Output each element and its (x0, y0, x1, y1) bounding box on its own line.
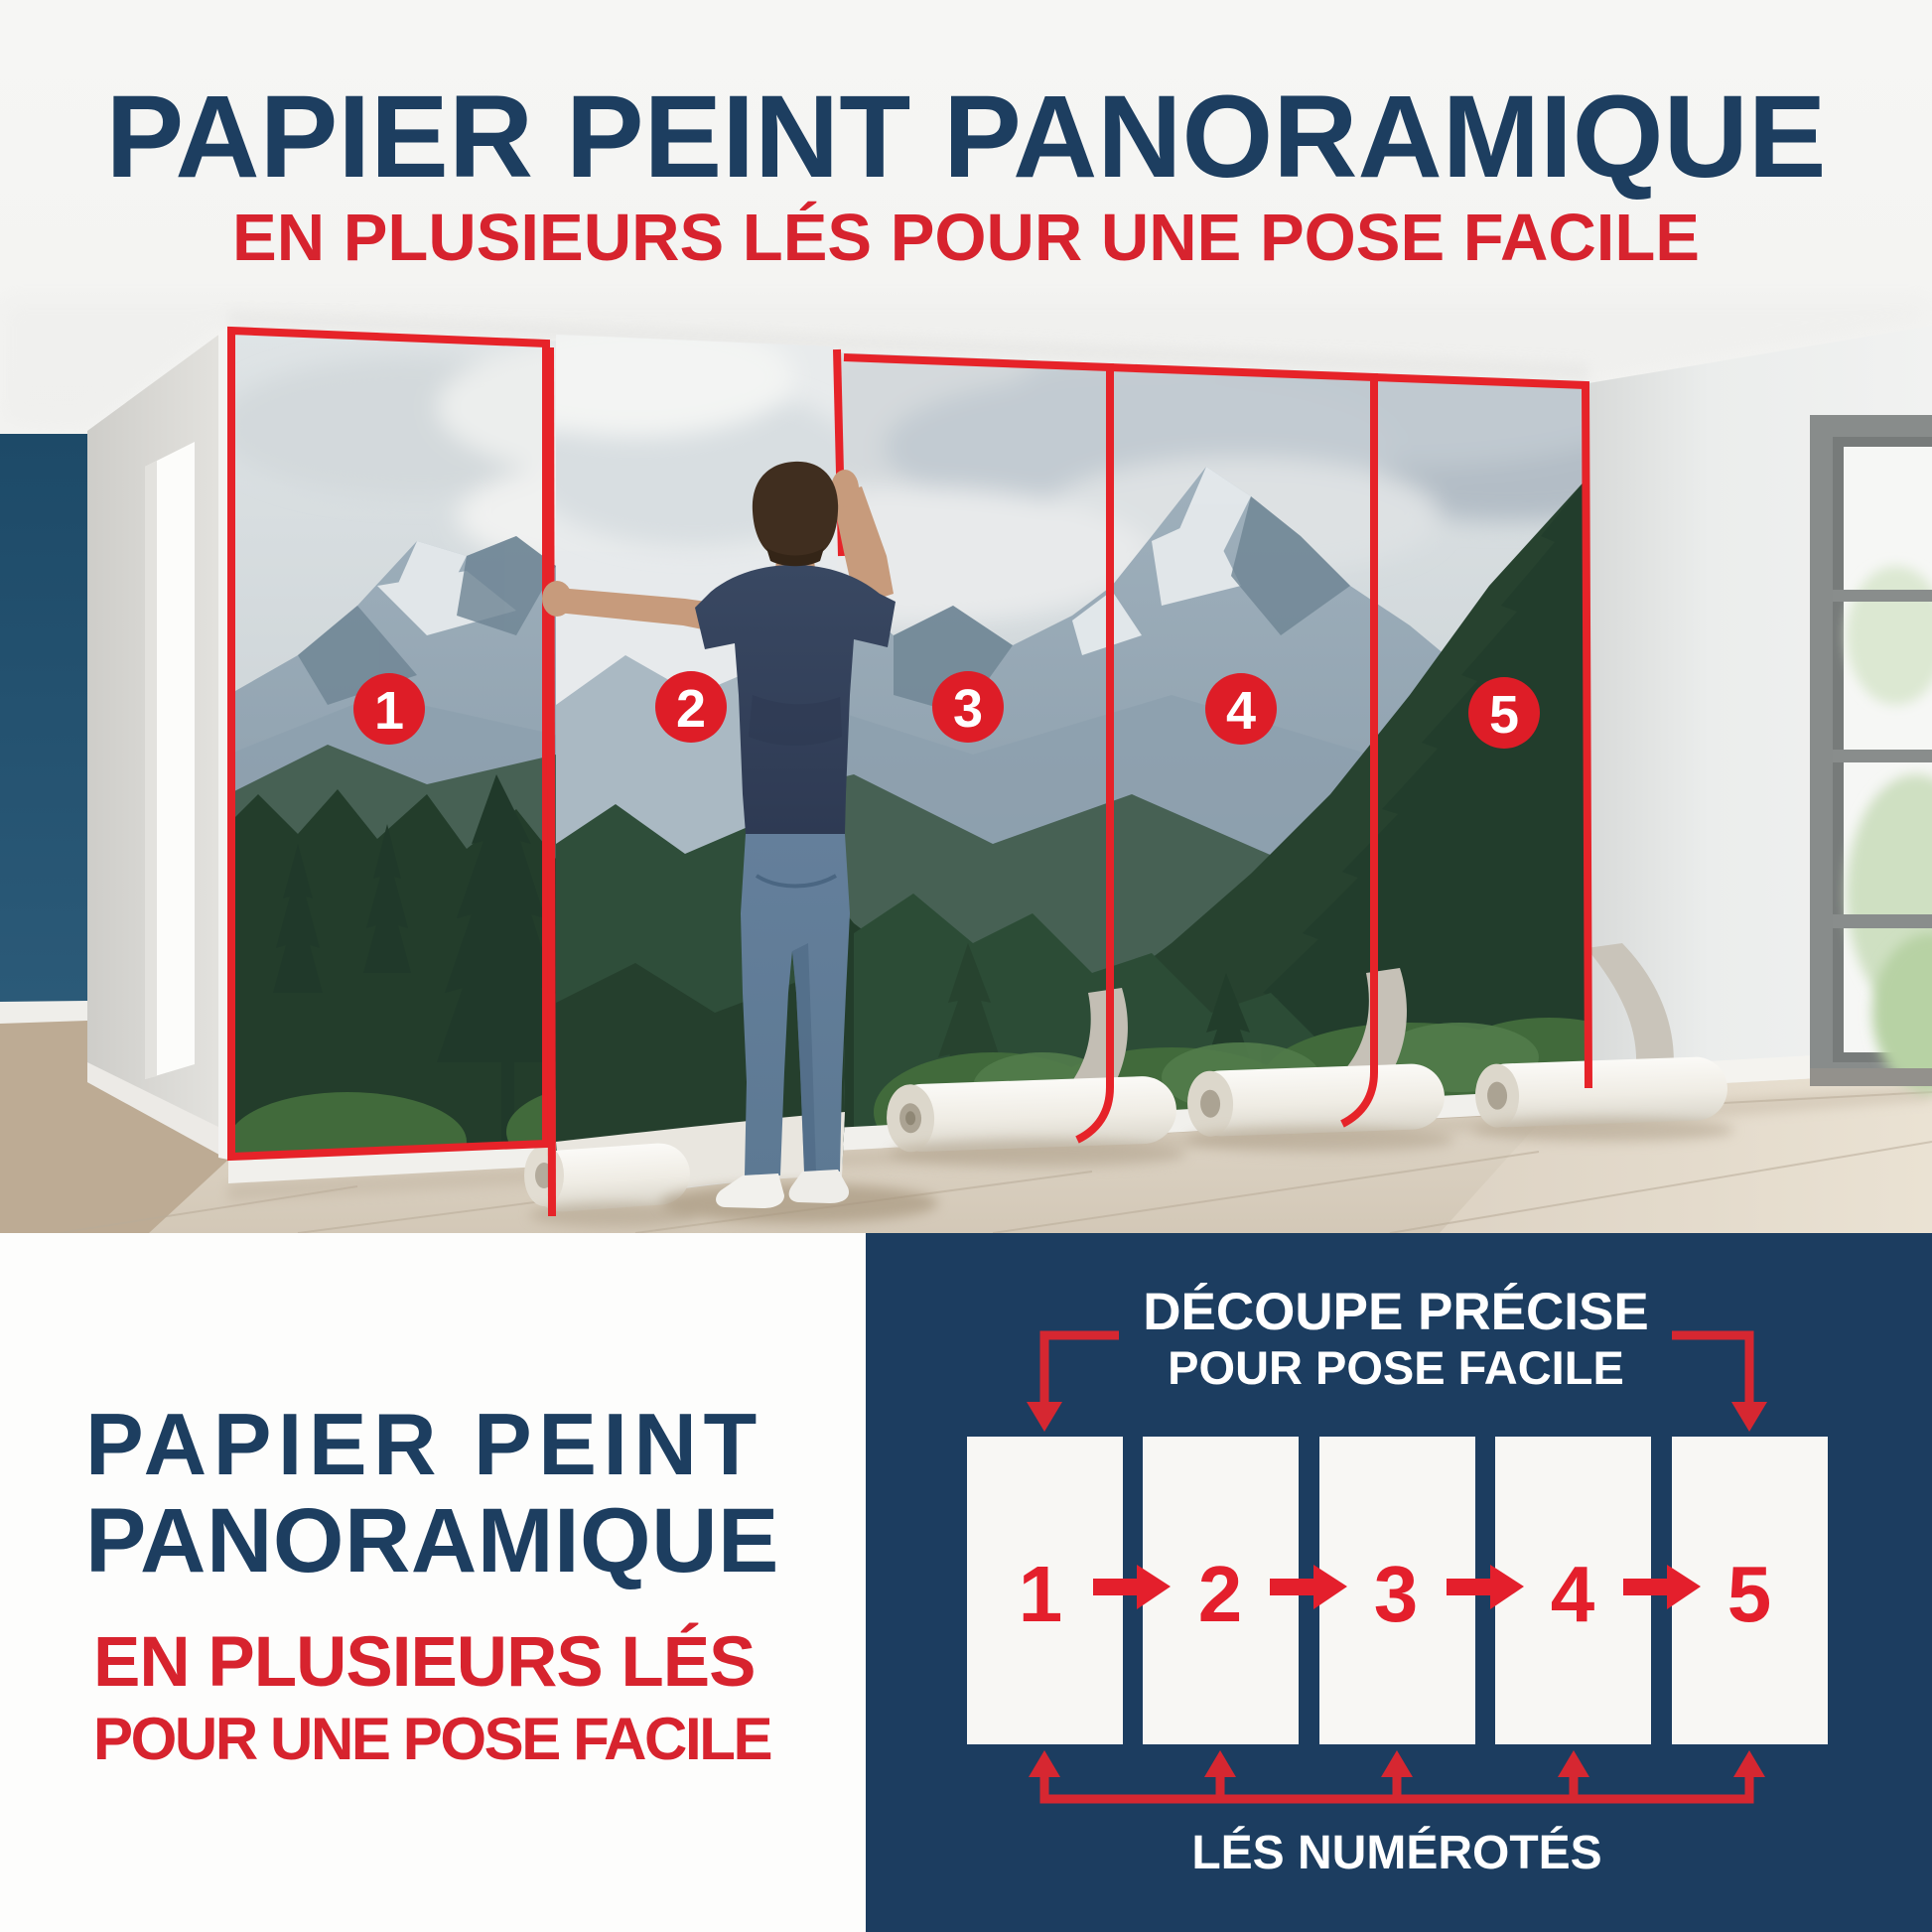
svg-text:4: 4 (1551, 1550, 1595, 1638)
svg-text:1: 1 (1019, 1550, 1063, 1638)
svg-text:POUR POSE FACILE: POUR POSE FACILE (1168, 1341, 1624, 1394)
svg-text:DÉCOUPE PRÉCISE: DÉCOUPE PRÉCISE (1143, 1282, 1649, 1341)
svg-text:1: 1 (374, 681, 404, 741)
svg-text:5: 5 (1727, 1550, 1772, 1638)
svg-text:2: 2 (676, 679, 706, 739)
svg-text:LÉS NUMÉROTÉS: LÉS NUMÉROTÉS (1191, 1826, 1601, 1879)
svg-text:3: 3 (1374, 1550, 1419, 1638)
svg-text:5: 5 (1489, 685, 1519, 745)
svg-text:3: 3 (953, 679, 983, 739)
svg-text:4: 4 (1226, 681, 1256, 741)
svg-text:2: 2 (1198, 1550, 1243, 1638)
